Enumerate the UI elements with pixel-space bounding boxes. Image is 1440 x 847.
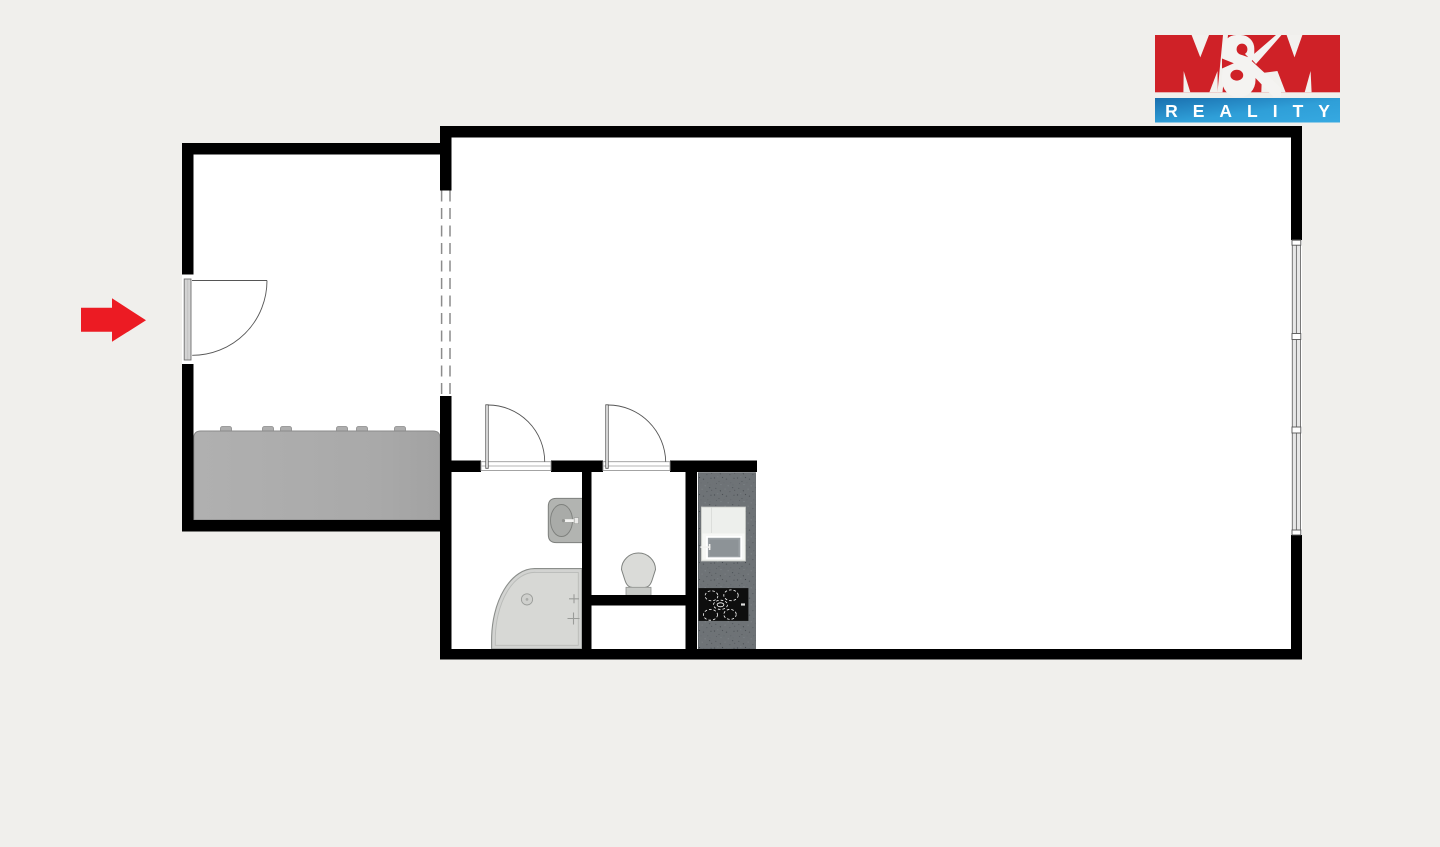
svg-text:REALITY: REALITY xyxy=(1165,101,1345,121)
